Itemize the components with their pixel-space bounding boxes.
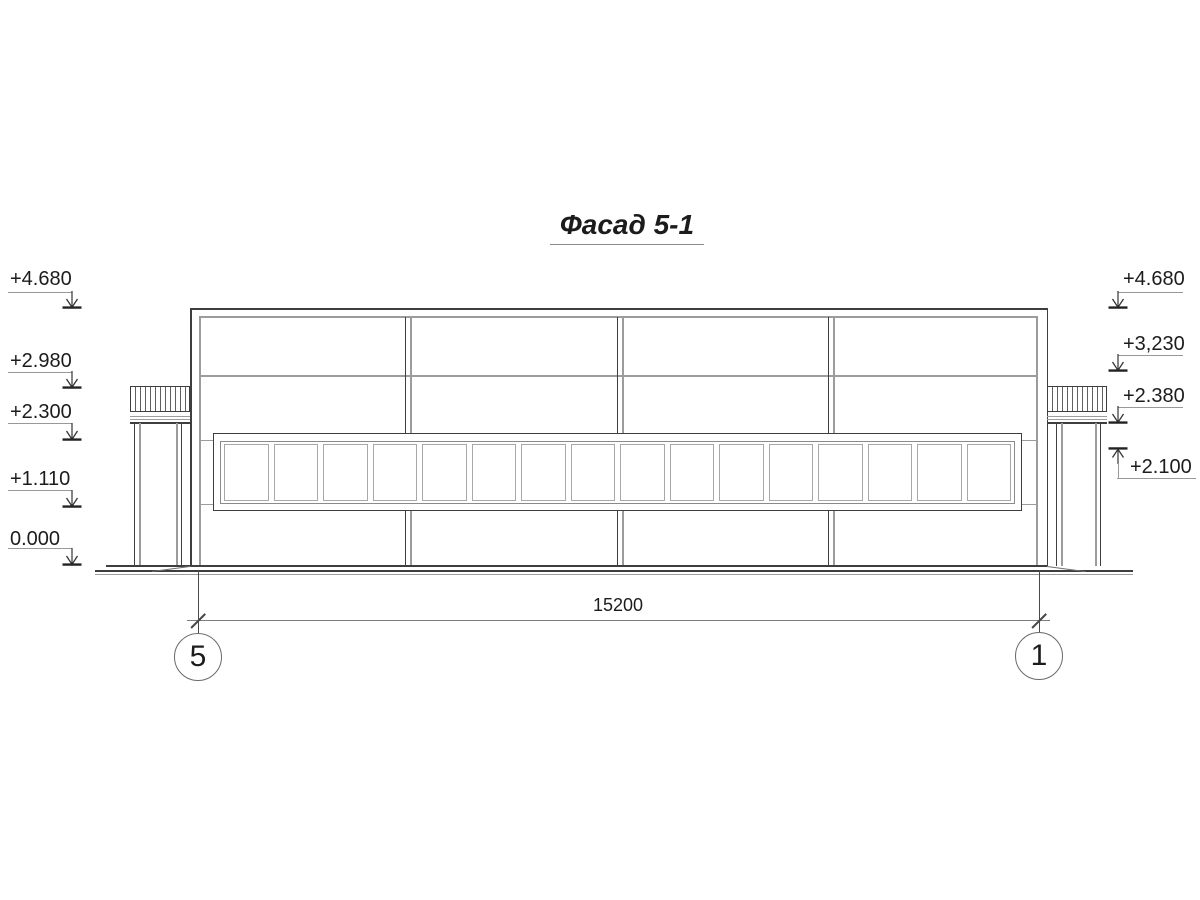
left-pilaster-column-line [176,423,178,566]
facade-column-line [828,510,829,565]
elevation-label: +4.680 [10,268,72,291]
facade-column-line [622,317,624,433]
window-pane [818,444,863,501]
window-pane [917,444,962,501]
elevation-label: +2.980 [10,350,72,373]
right-pilaster-column-line [1100,423,1101,566]
grid-axis-bubble-5: 5 [174,633,222,681]
right-wall-outer-line [1047,308,1049,566]
left-pilaster-column-line [181,423,182,566]
facade-drawing-canvas: Фасад 5-1 [0,0,1200,900]
window-panes [224,444,1011,501]
window-pane [670,444,715,501]
left-wall-inner-line [199,316,201,566]
elevation-label: +4.680 [1123,268,1185,291]
elevation-label: +2.100 [1130,456,1192,479]
facade-column-line [405,510,406,565]
dimension-value: 15200 [558,595,678,616]
elevation-label: +2.300 [10,401,72,424]
elevation-label: +2.380 [1123,385,1185,408]
facade-column-line [828,317,829,433]
facade-column-line [410,510,412,565]
window-pane [472,444,517,501]
facade-column-line [405,317,406,433]
drawing-title-text: Фасад 5-1 [550,209,704,245]
drawing-title: Фасад 5-1 [497,209,757,245]
elevation-arrow-down-icon [61,548,83,568]
window-pane [571,444,616,501]
left-pilaster-column-line [134,423,135,566]
window-pane [274,444,319,501]
facade-column-line [617,510,618,565]
window-pane [521,444,566,501]
elevation-arrow-down-icon [1107,354,1129,374]
parapet-top-line [190,308,1048,310]
window-pane [373,444,418,501]
plinth-line [106,565,1047,567]
grid-axis-bubble-1: 1 [1015,632,1063,680]
left-pilaster-cornice-line [130,416,190,417]
right-pilaster-hatched-cap [1047,386,1107,412]
right-pilaster-column-line [1061,423,1063,566]
left-pilaster-cornice-line [130,419,190,420]
window-pane [967,444,1012,501]
right-pilaster-column-line [1056,423,1057,566]
window-pane [224,444,269,501]
window-pane [868,444,913,501]
facade-column-line [833,317,835,433]
right-wall-inner-line [1036,316,1038,566]
window-pane [620,444,665,501]
window-pane [719,444,764,501]
parapet-bottom-line [200,316,1036,318]
elevation-arrow-down-icon [61,371,83,391]
window-pane [769,444,814,501]
elevation-arrow-up-icon [1107,447,1129,464]
elevation-arrow-down-icon [1107,291,1129,311]
elevation-leader-line [1118,463,1119,479]
facade-column-line [617,317,618,433]
elevation-label: +3,230 [1123,333,1185,356]
grid-axis-line-1 [1039,570,1040,632]
facade-joint-line [201,375,1036,377]
grid-axis-line-5 [198,570,199,633]
facade-column-line [622,510,624,565]
elevation-arrow-down-icon [1107,406,1129,426]
elevation-arrow-down-icon [61,291,83,311]
window-pane [422,444,467,501]
left-pilaster-hatched-cap [130,386,190,412]
facade-joint-line [1022,504,1036,505]
right-pilaster-column-line [1095,423,1097,566]
elevation-arrow-down-icon [61,490,83,510]
ground-line [95,570,1133,572]
right-pilaster-cornice-line [1047,416,1107,417]
elevation-label: +1.110 [10,468,70,491]
grid-axis-label: 1 [1031,639,1048,673]
elevation-arrow-down-icon [61,423,83,443]
grid-axis-label: 5 [190,640,207,674]
dimension-line [187,620,1050,621]
ground-line-secondary [95,574,1133,575]
facade-column-line [410,317,412,433]
right-pilaster-cornice-line [1047,419,1107,420]
window-pane [323,444,368,501]
facade-column-line [833,510,835,565]
facade-joint-line [1022,440,1036,441]
left-wall-outer-line [190,308,192,566]
left-pilaster-column-line [139,423,141,566]
